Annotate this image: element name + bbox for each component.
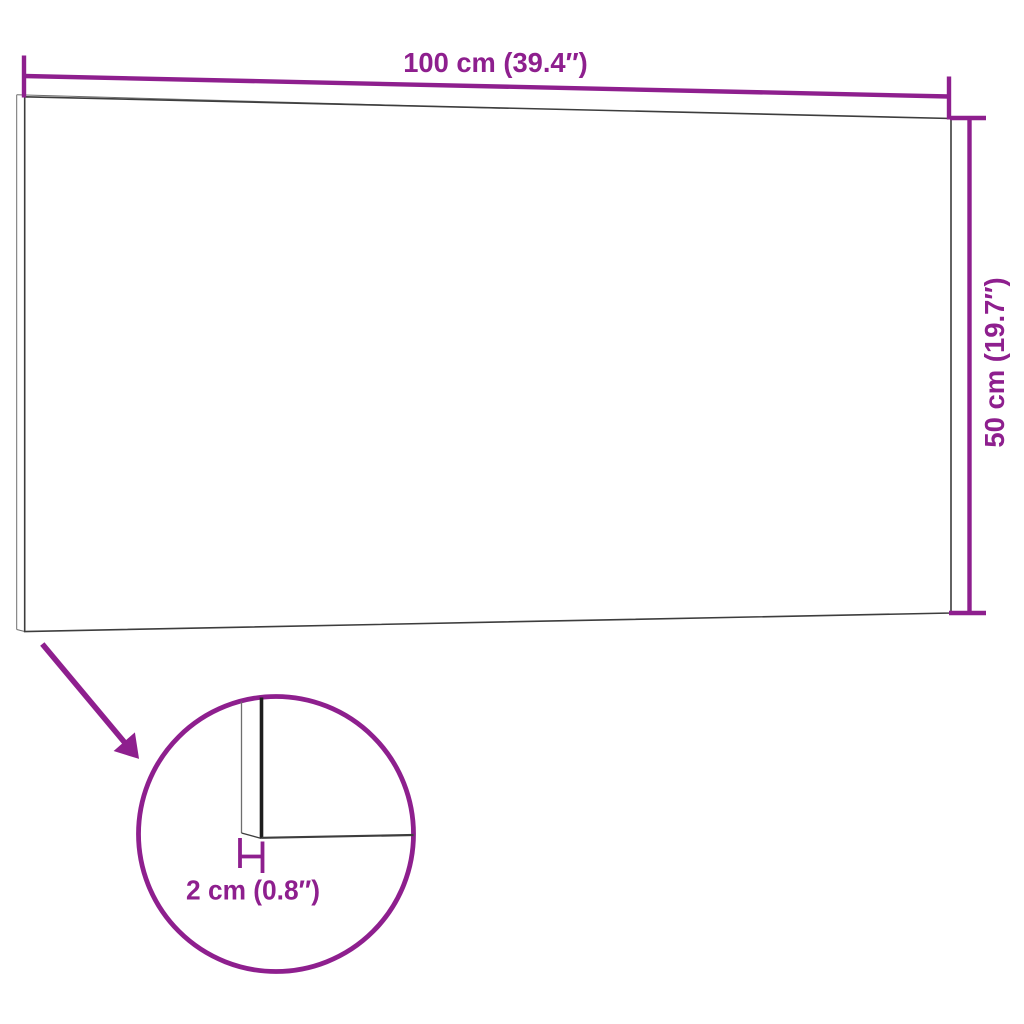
- svg-text:100 cm (39.4″): 100 cm (39.4″): [403, 47, 587, 78]
- svg-text:2 cm (0.8″): 2 cm (0.8″): [186, 874, 320, 906]
- svg-text:50 cm (19.7″): 50 cm (19.7″): [979, 277, 1010, 447]
